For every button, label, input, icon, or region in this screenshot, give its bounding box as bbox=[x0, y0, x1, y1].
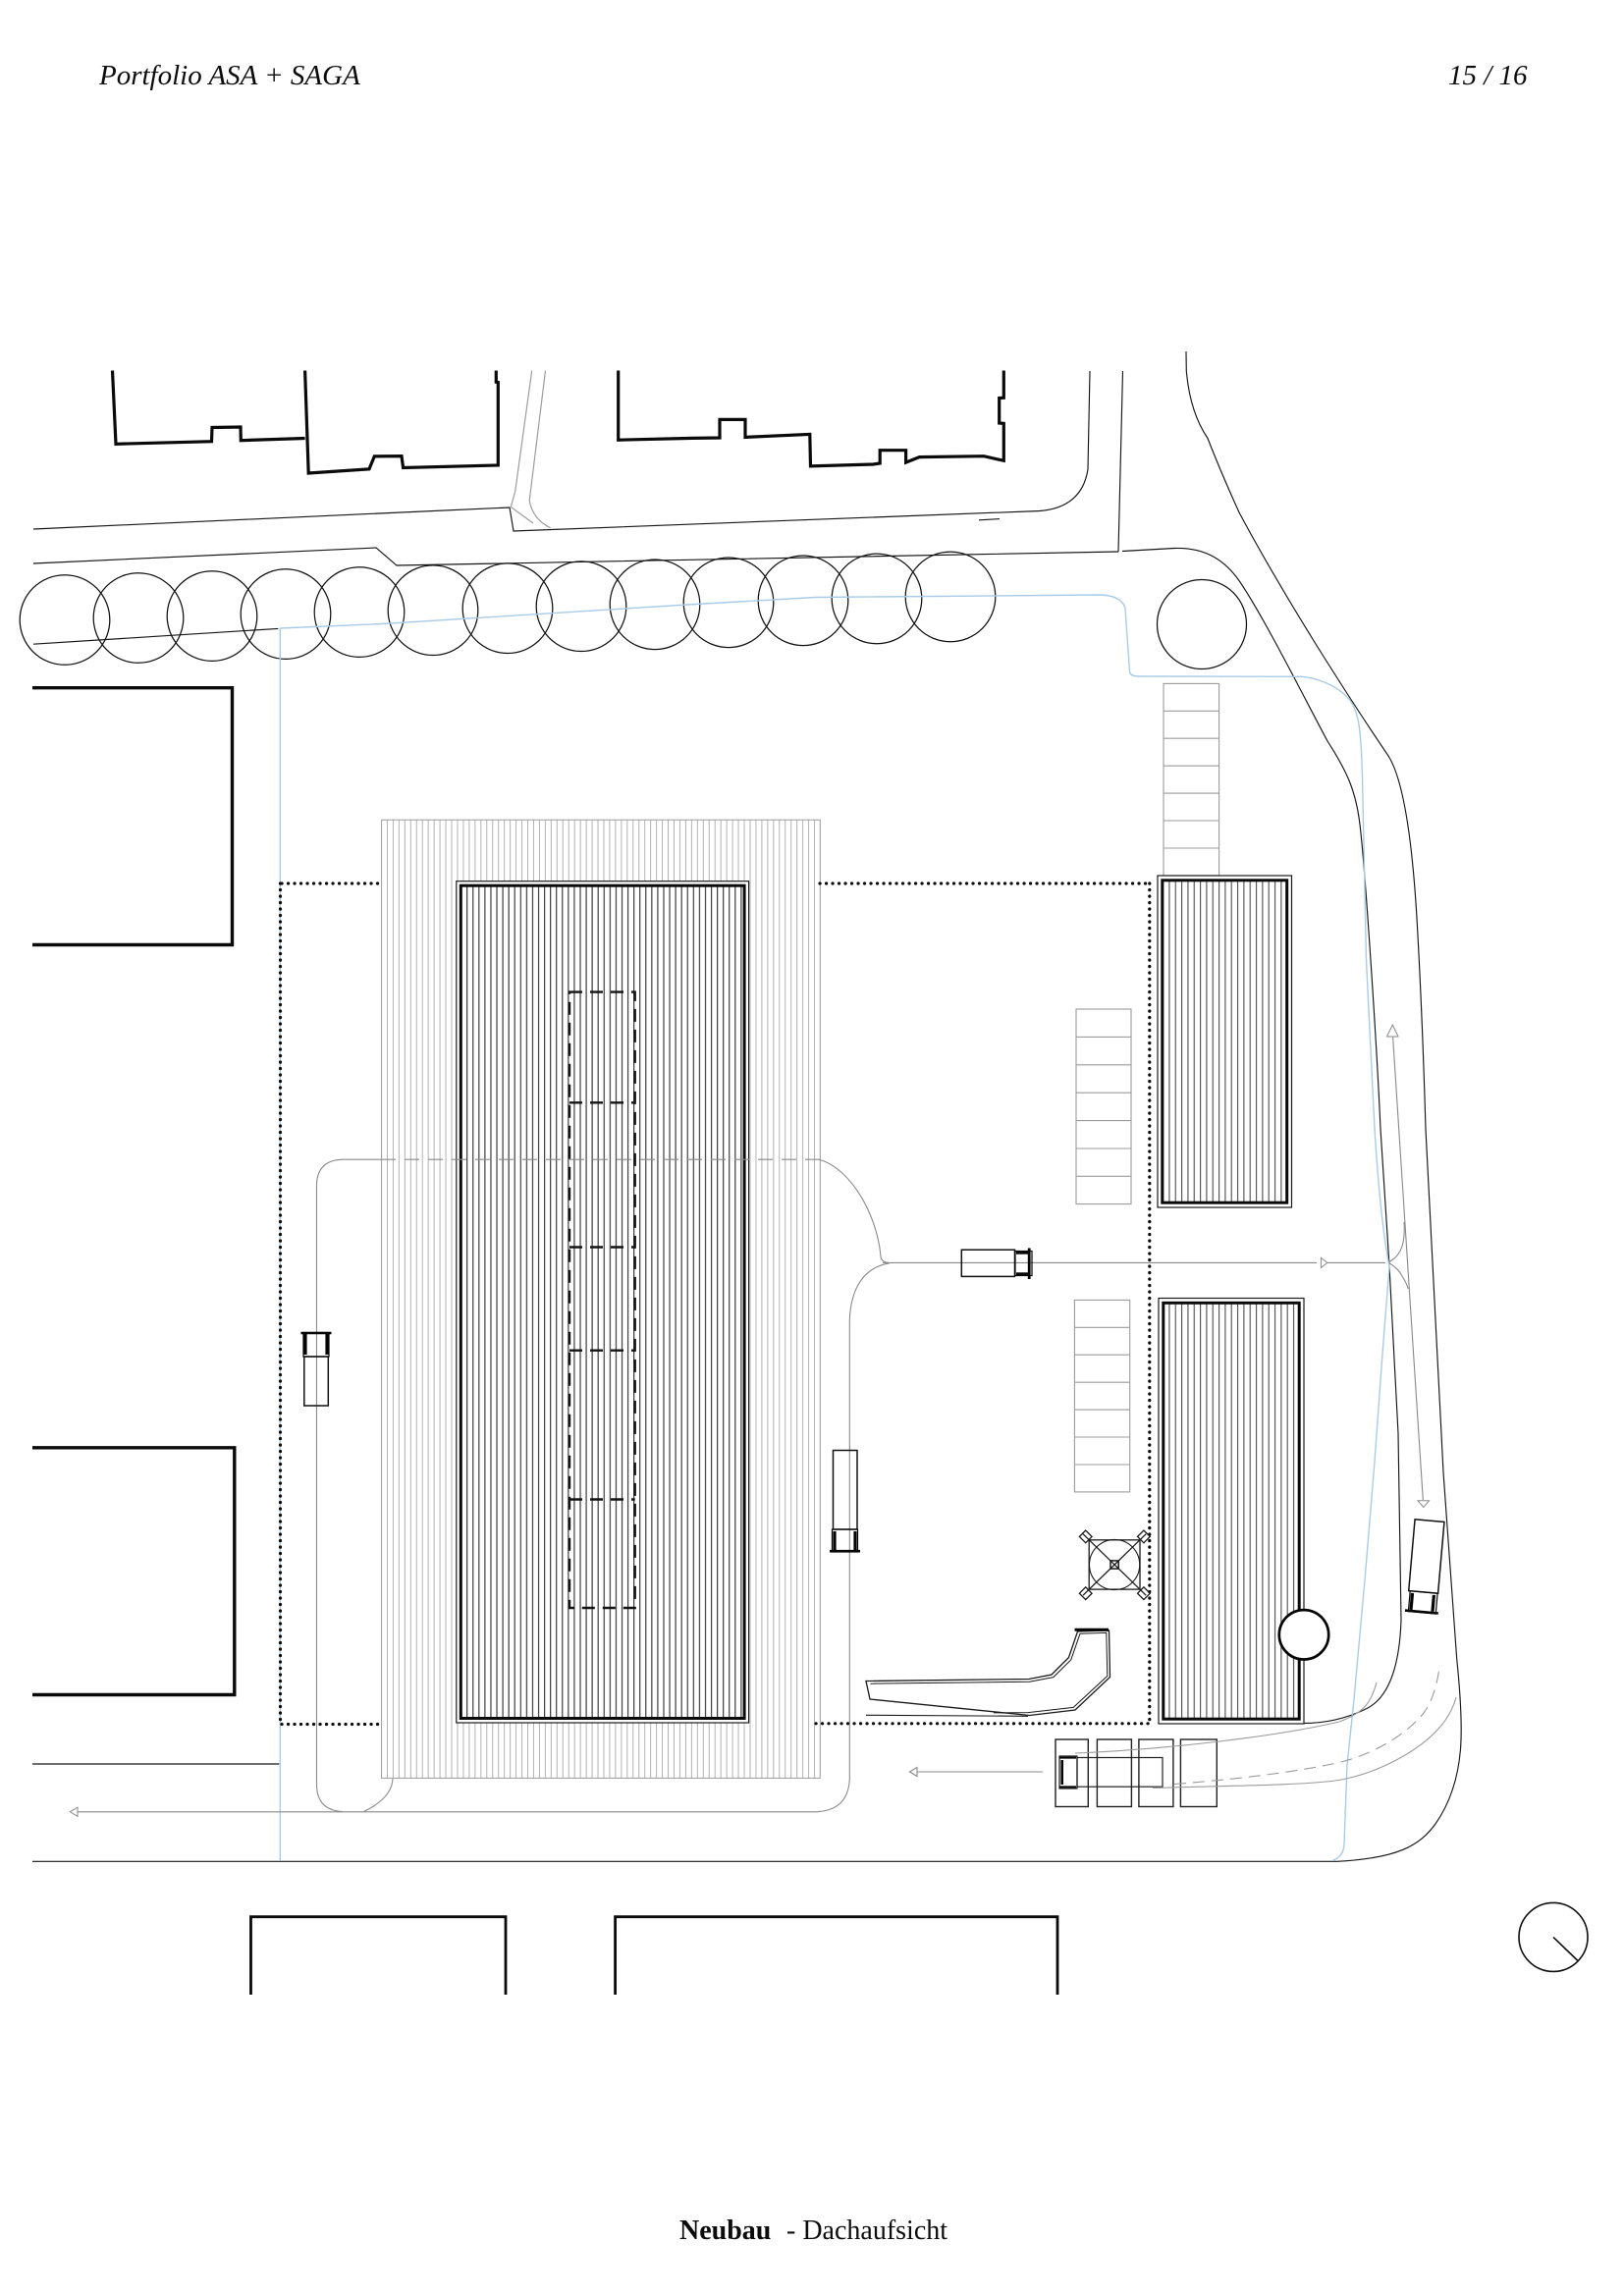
svg-text:Portfolio ASA + SAGA: Portfolio ASA + SAGA bbox=[98, 60, 360, 91]
svg-text:- Dachaufsicht: - Dachaufsicht bbox=[786, 2216, 947, 2246]
svg-text:Neubau: Neubau bbox=[679, 2216, 771, 2246]
svg-text:15 / 16: 15 / 16 bbox=[1448, 60, 1528, 91]
